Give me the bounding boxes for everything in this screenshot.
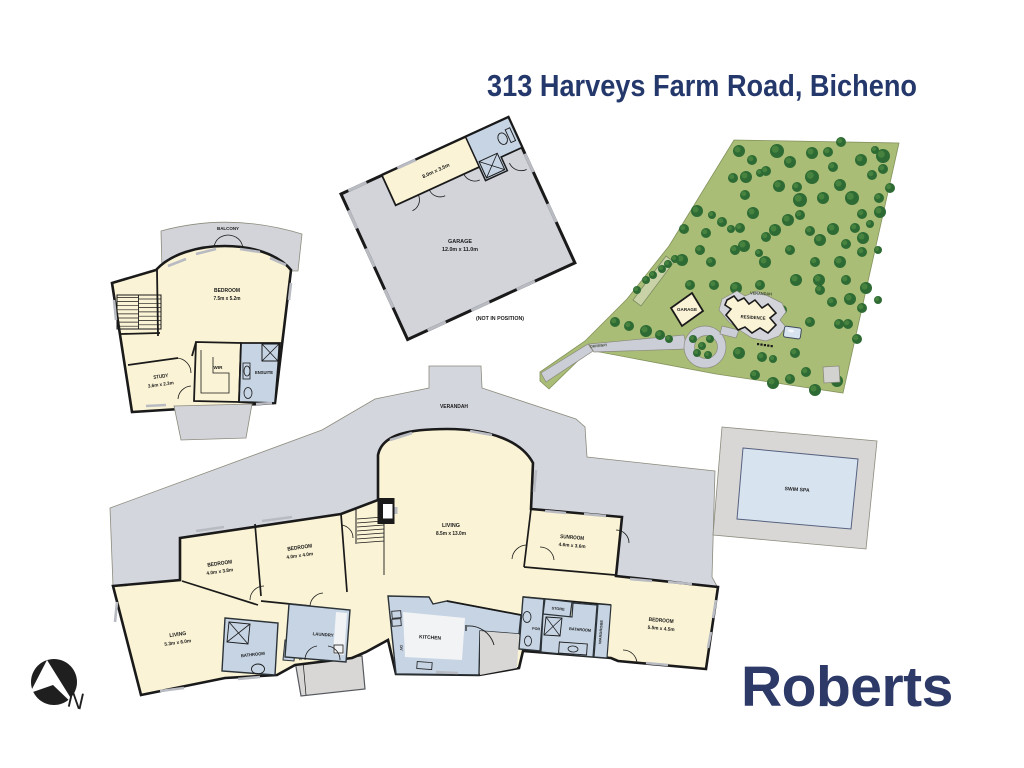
svg-text:ENSUITE: ENSUITE: [255, 370, 273, 375]
svg-text:GARAGE: GARAGE: [448, 239, 473, 245]
svg-text:12.0m x 11.0m: 12.0m x 11.0m: [442, 247, 479, 253]
svg-text:BEDROOM: BEDROOM: [214, 288, 240, 294]
svg-text:313 Harveys Farm Road, Bicheno: 313 Harveys Farm Road, Bicheno: [487, 68, 917, 103]
svg-text:DV: DV: [399, 645, 403, 651]
svg-text:WIR: WIR: [214, 365, 224, 370]
svg-text:GARAGE: GARAGE: [677, 307, 697, 312]
svg-text:POR: POR: [532, 627, 541, 632]
svg-text:8.5m x 13.0m: 8.5m x 13.0m: [436, 531, 467, 537]
svg-text:(NOT IN POSITION): (NOT IN POSITION): [476, 316, 524, 322]
svg-text:VERANDAH: VERANDAH: [440, 404, 468, 410]
svg-text:7.5m x 5.2m: 7.5m x 5.2m: [214, 296, 242, 302]
svg-text:LIVING: LIVING: [442, 523, 460, 529]
svg-text:BALCONY: BALCONY: [217, 226, 240, 232]
svg-text:Roberts: Roberts: [741, 655, 953, 719]
